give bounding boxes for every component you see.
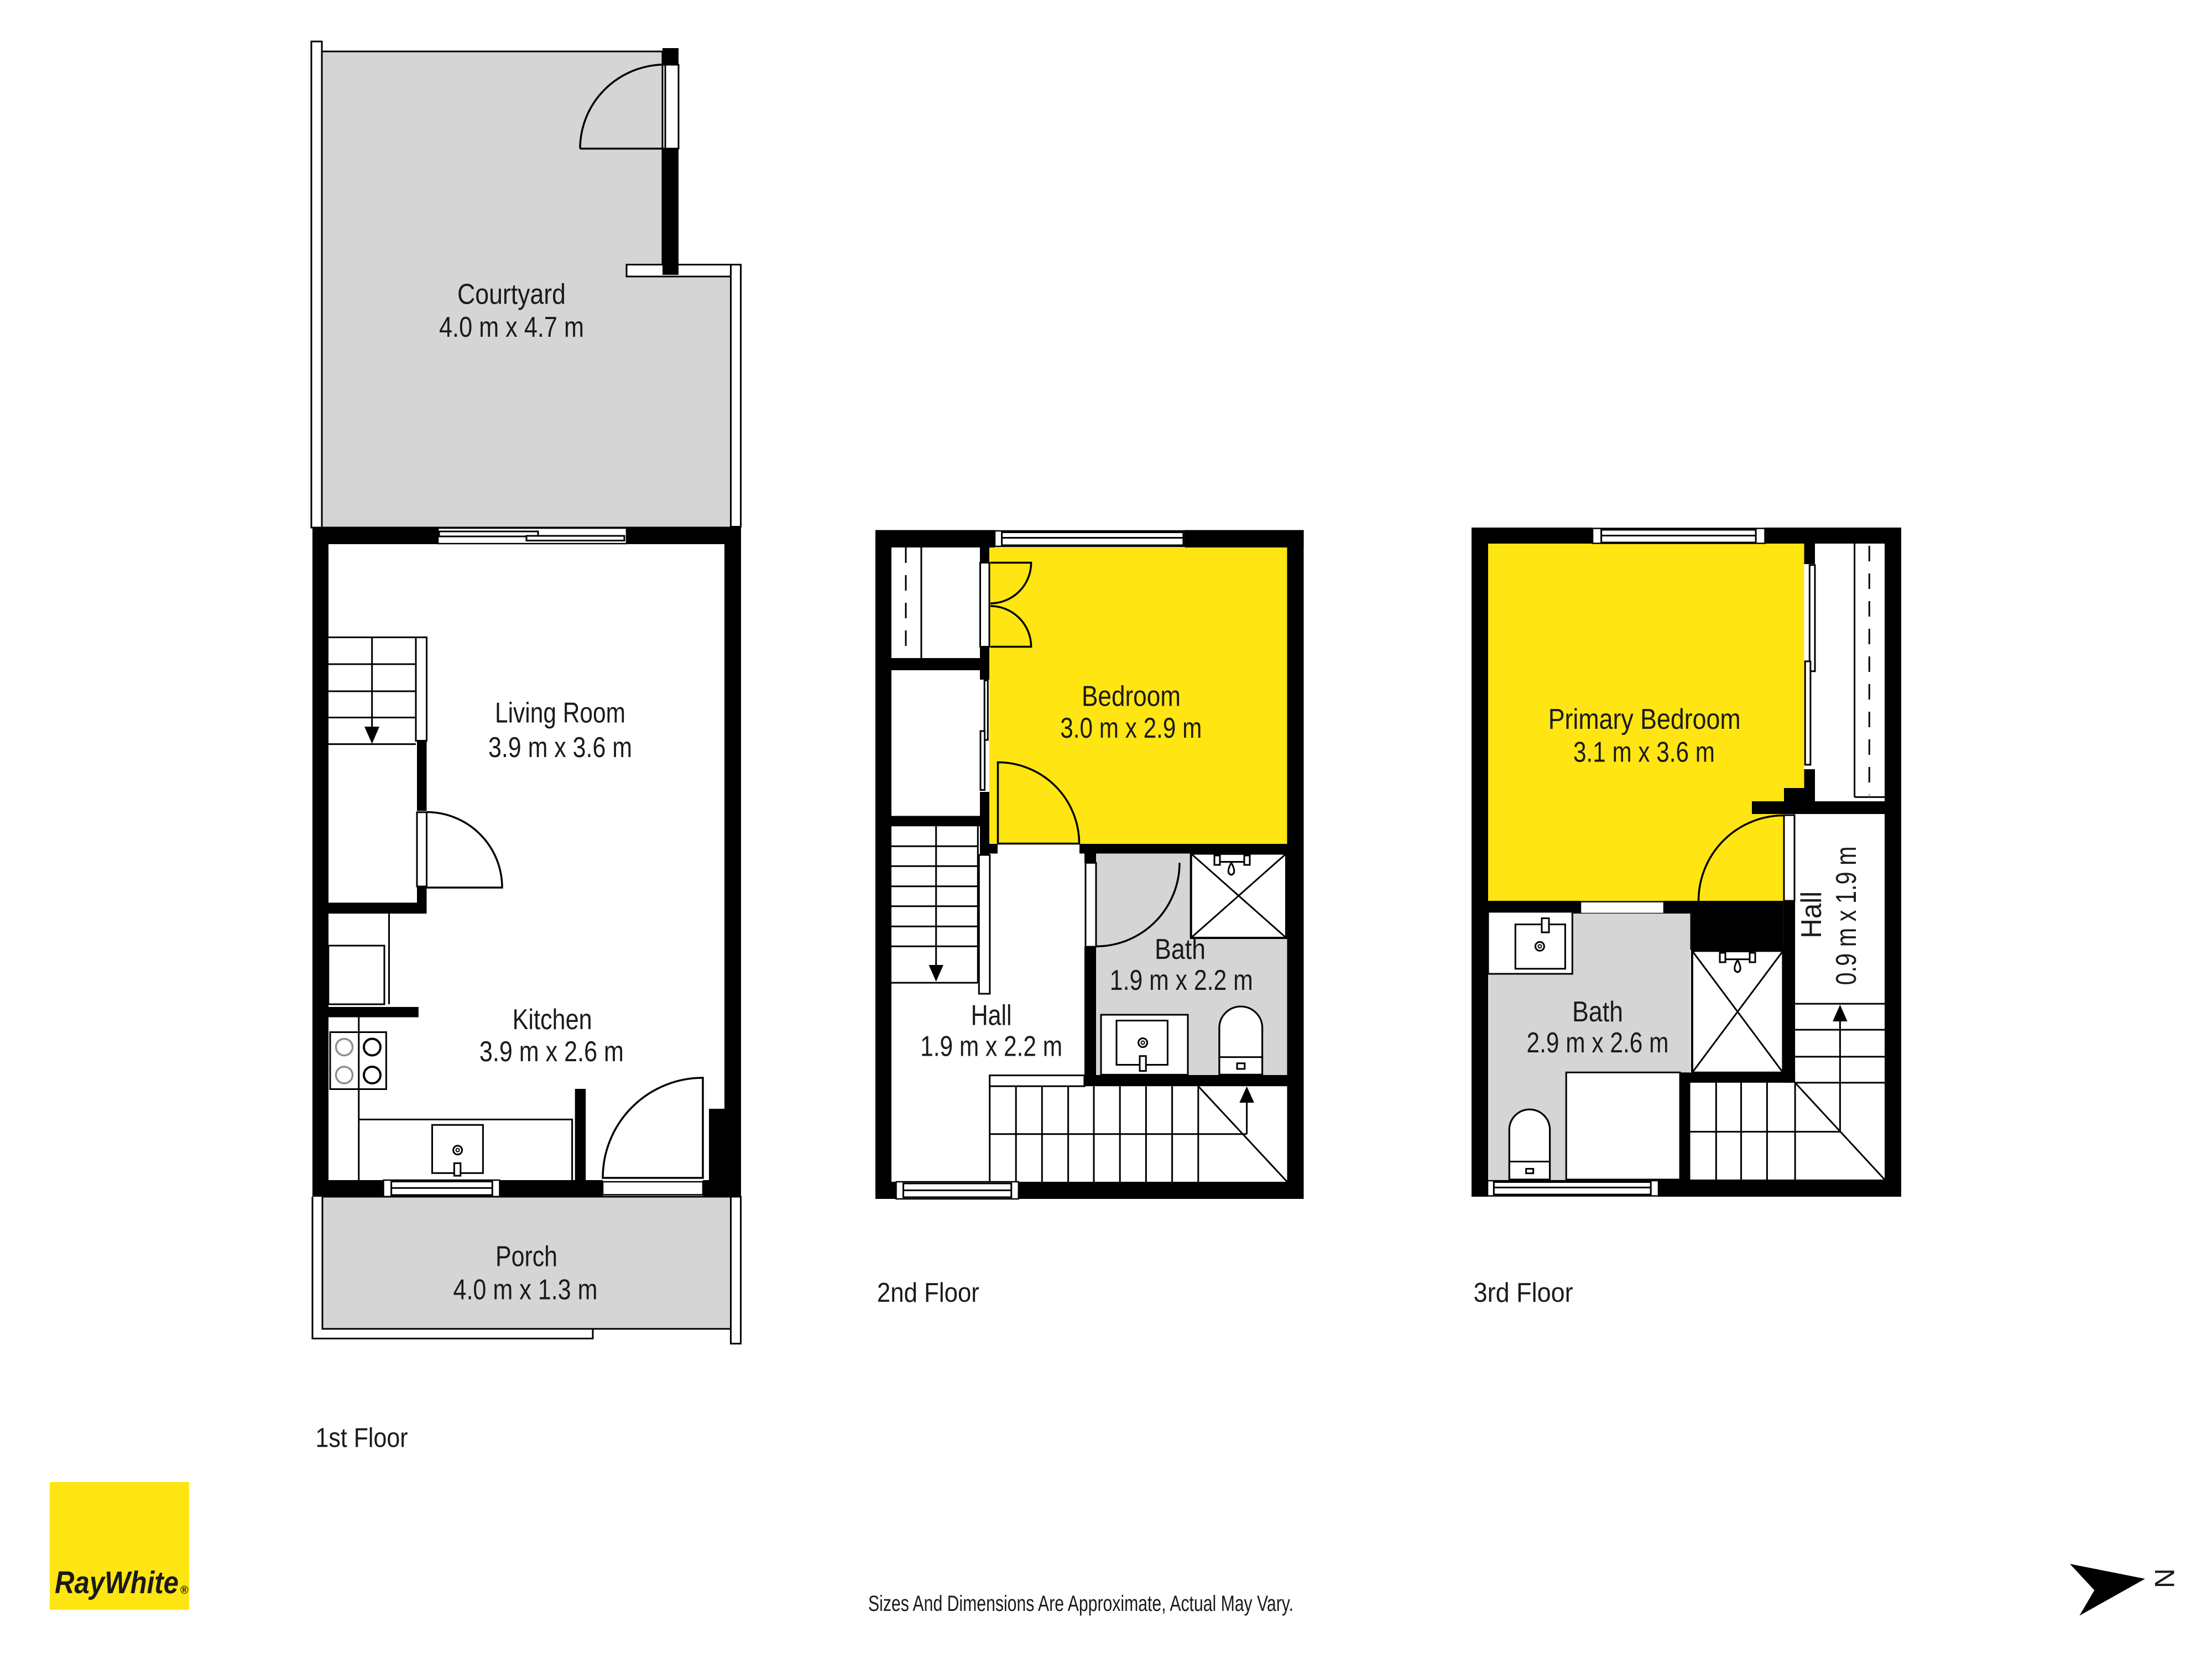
svg-text:4.0 m x 1.3 m: 4.0 m x 1.3 m [453,1274,598,1306]
svg-text:Kitchen: Kitchen [513,1004,592,1036]
svg-text:1.9 m x 2.2 m: 1.9 m x 2.2 m [1110,964,1253,997]
svg-text:0.9 m x 1.9 m: 0.9 m x 1.9 m [1830,846,1863,985]
svg-text:Hall: Hall [1796,891,1828,938]
svg-text:Bedroom: Bedroom [1082,681,1181,713]
svg-text:3.1 m x 3.6 m: 3.1 m x 3.6 m [1573,737,1715,769]
svg-text:3.9 m x 2.6 m: 3.9 m x 2.6 m [479,1036,624,1068]
svg-text:N: N [2149,1568,2180,1588]
svg-text:3rd Floor: 3rd Floor [1474,1278,1573,1308]
svg-text:3.9 m x 3.6 m: 3.9 m x 3.6 m [488,732,632,764]
svg-text:Sizes And Dimensions Are Appro: Sizes And Dimensions Are Approximate, Ac… [868,1592,1293,1616]
svg-text:2.9 m x 2.6 m: 2.9 m x 2.6 m [1527,1027,1669,1059]
svg-text:1st Floor: 1st Floor [316,1423,408,1453]
svg-text:Bath: Bath [1572,996,1623,1028]
svg-text:Living Room: Living Room [495,697,625,729]
svg-text:1.9 m x 2.2 m: 1.9 m x 2.2 m [920,1030,1062,1062]
svg-text:®: ® [180,1584,189,1597]
svg-text:4.0 m x 4.7 m: 4.0 m x 4.7 m [439,311,584,343]
svg-text:Primary Bedroom: Primary Bedroom [1548,703,1741,735]
svg-text:Porch: Porch [495,1241,557,1273]
svg-text:Bath: Bath [1155,933,1206,966]
svg-text:2nd Floor: 2nd Floor [877,1278,979,1308]
svg-text:Courtyard: Courtyard [457,279,566,311]
svg-text:3.0 m x 2.9 m: 3.0 m x 2.9 m [1060,712,1202,744]
svg-text:Hall: Hall [971,999,1012,1031]
svg-text:RayWhite: RayWhite [55,1565,179,1600]
